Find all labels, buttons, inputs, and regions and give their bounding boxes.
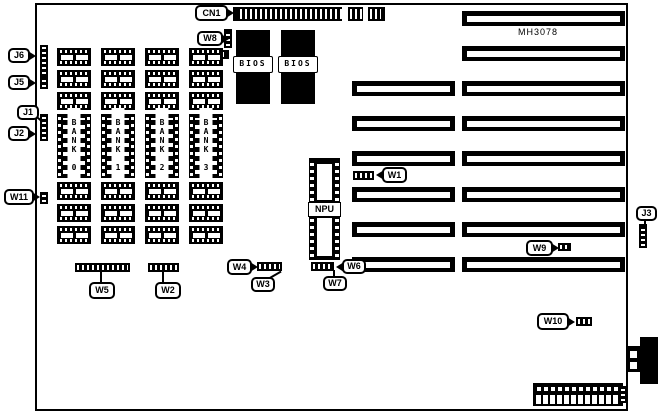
bank-0-label: BANK 0: [68, 108, 81, 182]
dram-chip: [101, 226, 135, 244]
label-w11: W11: [4, 189, 34, 205]
label-w10: W10: [537, 313, 569, 330]
label-j3: J3: [636, 206, 657, 221]
w5-leader-line: [100, 272, 102, 282]
memory-bank-2: BANK 2: [145, 48, 179, 244]
memory-bank-1: BANK 1: [101, 48, 135, 244]
bios-chip-2-label: BIOS: [278, 56, 318, 73]
label-w6: W6: [342, 259, 366, 274]
j3-jumper: [639, 224, 647, 248]
label-w9: W9: [526, 240, 553, 256]
bank-1-label: BANK 1: [112, 108, 125, 182]
label-w7: W7: [323, 276, 347, 291]
j1-j2-jumper-block: [40, 114, 48, 141]
npu-socket: NPU: [309, 158, 340, 260]
keyboard-connector: [628, 337, 658, 384]
w4-jumper: [257, 262, 282, 271]
slot-extension-2: [352, 116, 455, 131]
dram-chip: [145, 182, 179, 200]
bank-2-label: BANK 2: [156, 108, 169, 182]
keyboard-connector-notch: [630, 362, 637, 369]
keyboard-connector-bottom: [640, 372, 658, 384]
label-j5: J5: [8, 75, 30, 90]
label-j2: J2: [8, 126, 30, 141]
w5-jumper-strip: [75, 263, 130, 272]
npu-socket-label: NPU: [308, 202, 341, 217]
cn1-pin-gap: [363, 7, 368, 21]
dram-chip: [101, 204, 135, 222]
label-w5: W5: [89, 282, 115, 299]
dram-chip: [145, 70, 179, 88]
dram-chip: [145, 226, 179, 244]
dram-chip: [189, 182, 223, 200]
dram-chip: [145, 48, 179, 66]
dram-chip: [189, 48, 223, 66]
dram-chip: [145, 204, 179, 222]
w2-jumper-strip: [148, 263, 179, 272]
label-j6: J6: [8, 48, 30, 63]
dram-chip-column: BANK 0: [57, 114, 91, 178]
label-w2: W2: [155, 282, 181, 299]
label-w1: W1: [382, 167, 407, 183]
bank-3-label: BANK 3: [200, 108, 213, 182]
dram-chip: [189, 226, 223, 244]
slot-extension-4: [352, 187, 455, 202]
slot-extension-1: [352, 81, 455, 96]
slot-6: [462, 187, 625, 202]
cn1-pin-gap: [342, 7, 348, 21]
w9-jumper: [558, 243, 571, 251]
label-j1: J1: [17, 105, 39, 120]
dram-chip-column: BANK 1: [101, 114, 135, 178]
slot-4: [462, 116, 625, 131]
dram-chip: [101, 48, 135, 66]
dram-chip: [101, 70, 135, 88]
memory-bank-3: BANK 3: [189, 48, 223, 244]
power-connector: [533, 383, 623, 406]
dram-chip: [57, 226, 91, 244]
dram-chip-column: BANK 2: [145, 114, 179, 178]
dram-chip: [189, 204, 223, 222]
bios-chip-1-label: BIOS: [233, 56, 273, 73]
edge-connector: [619, 386, 627, 403]
slot-extension-5: [352, 222, 455, 237]
slot-5: [462, 151, 625, 166]
label-w8: W8: [197, 31, 223, 46]
slot-8: [462, 257, 625, 272]
dram-chip-column: BANK 3: [189, 114, 223, 178]
keyboard-connector-notch: [630, 351, 637, 358]
motherboard-layout-diagram: CN1 W8 BIOS BIOS MH3078 BANK 0 BANK 1: [0, 0, 661, 415]
label-w3: W3: [251, 277, 275, 292]
slot-3: [462, 81, 625, 96]
dram-chip: [57, 182, 91, 200]
w1-jumper: [353, 171, 374, 180]
w10-jumper: [576, 317, 592, 326]
w11-jumper: [40, 192, 48, 204]
label-w4: W4: [227, 259, 252, 275]
slot-extension-3: [352, 151, 455, 166]
bios-chip-2: BIOS: [281, 30, 315, 104]
slot-7: [462, 222, 625, 237]
dram-chip: [57, 204, 91, 222]
memory-bank-0: BANK 0: [57, 48, 91, 244]
dram-chip: [57, 48, 91, 66]
label-cn1: CN1: [195, 5, 228, 21]
dram-chip: [57, 70, 91, 88]
dram-chip: [189, 70, 223, 88]
bios-chip-1: BIOS: [236, 30, 270, 104]
w2-leader-line: [162, 272, 164, 282]
slot-extension-6: [352, 257, 455, 272]
j5-jumper: [40, 76, 48, 89]
slot-1: [462, 11, 625, 26]
slot-2: [462, 46, 625, 61]
board-part-number: MH3078: [518, 27, 558, 37]
j6-header: [40, 45, 48, 76]
w6-jumper: [311, 262, 334, 271]
dram-chip: [101, 182, 135, 200]
